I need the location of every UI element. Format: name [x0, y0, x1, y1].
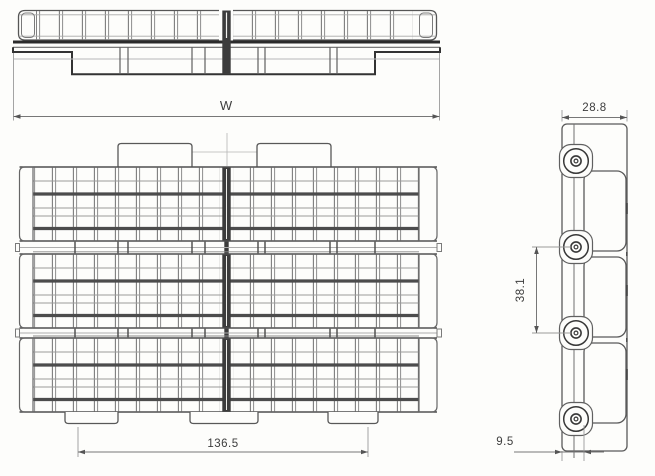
bottom-tab — [190, 412, 258, 424]
dimension-side-width: 28.8 — [562, 102, 627, 122]
pin-center — [574, 417, 578, 421]
arrowhead — [555, 450, 562, 455]
dimension-base-indent: 136.5 — [78, 427, 368, 457]
arrowhead — [14, 114, 21, 119]
arrowhead — [620, 115, 627, 120]
dim-base-indent-label: 136.5 — [207, 438, 238, 450]
pin-center — [574, 331, 578, 335]
dim-pitch-label: 38.1 — [515, 278, 527, 302]
side-view: 28.8 38.1 9.5 — [496, 102, 627, 461]
pin-center — [574, 245, 578, 249]
dim-overall-width-label: W — [220, 98, 233, 113]
pin-center — [574, 159, 578, 163]
arrowhead — [534, 247, 539, 254]
dim-pin-offset-label: 9.5 — [496, 436, 514, 448]
front-elevation-view: W — [13, 11, 440, 121]
arrowhead — [361, 450, 368, 455]
plan-view: 136.5 — [16, 133, 442, 457]
arrowhead — [534, 326, 539, 333]
drawing-canvas: W — [0, 0, 655, 476]
top-tab — [257, 144, 331, 168]
edge-notch — [437, 244, 442, 252]
dim-side-width-label: 28.8 — [582, 102, 606, 114]
technical-drawing: W — [0, 0, 655, 476]
edge-notch — [437, 329, 442, 337]
module-seam-plan — [222, 167, 230, 412]
bottom-tab — [65, 412, 118, 424]
rib-cells-left — [36, 11, 219, 40]
bottom-tab — [328, 412, 378, 424]
edge-notch — [16, 244, 20, 252]
rib-cells-right — [233, 11, 413, 40]
arrowhead — [562, 115, 569, 120]
edge-notch — [16, 329, 20, 337]
arrowhead — [78, 450, 85, 455]
arrowhead — [433, 114, 440, 119]
top-tab — [118, 144, 192, 168]
